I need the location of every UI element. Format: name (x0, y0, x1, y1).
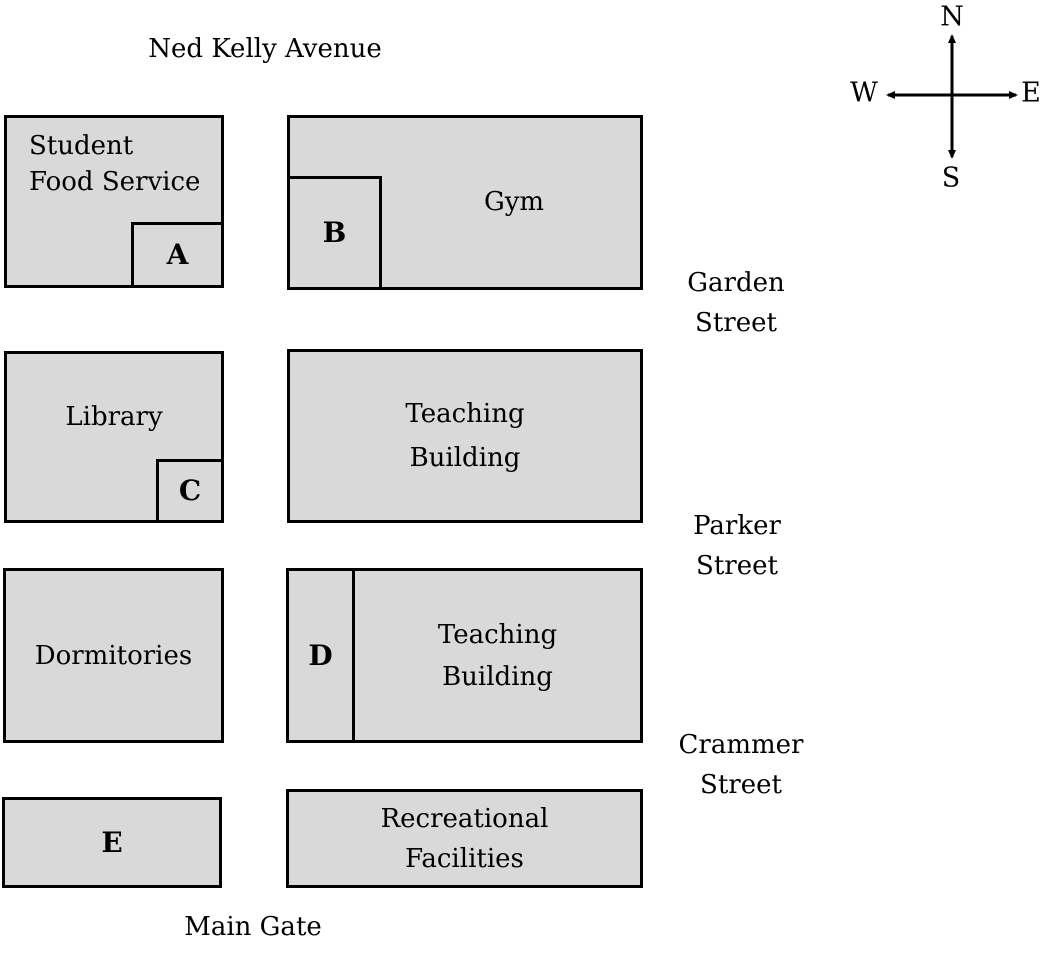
label-line: Teaching (405, 392, 524, 436)
label-line: Food Service (29, 164, 221, 200)
annex-box-d: D (289, 571, 355, 740)
label-line: Student (29, 128, 221, 164)
label-line: Building (405, 436, 524, 480)
annex-letter-b: B (323, 219, 347, 247)
label-line: Facilities (381, 839, 549, 879)
street-name-line: Crammer (679, 725, 804, 765)
building-label: Student Food Service (29, 128, 221, 200)
compass-north-label: N (940, 4, 964, 31)
annex-letter-e: E (101, 829, 122, 857)
label-line: Building (438, 656, 557, 698)
avenue-label: Ned Kelly Avenue (148, 34, 381, 64)
building-label: Library (65, 402, 162, 432)
street-name-line: Street (687, 303, 784, 343)
building-label-area: Teaching Building (355, 571, 640, 740)
main-gate-label: Main Gate (184, 912, 322, 942)
building-label: Recreational Facilities (381, 799, 549, 879)
compass-south-label: S (942, 165, 961, 192)
annex-box-b: B (287, 176, 382, 290)
street-name-line: Garden (687, 263, 784, 303)
label-line: Recreational (381, 799, 549, 839)
annex-letter-d: D (308, 642, 332, 670)
building-label: Teaching Building (438, 614, 557, 698)
annex-box-e: E (2, 797, 222, 888)
street-label-parker: Parker Street (693, 506, 781, 586)
annex-box-a: A (131, 222, 224, 288)
building-teaching-north: Teaching Building (287, 349, 643, 523)
building-recreational-facilities: Recreational Facilities (286, 789, 643, 888)
street-name-line: Street (679, 765, 804, 805)
annex-letter-c: C (179, 477, 201, 505)
street-name-line: Street (693, 546, 781, 586)
street-name-line: Parker (693, 506, 781, 546)
annex-box-c: C (156, 459, 224, 523)
annex-letter-a: A (167, 241, 189, 269)
building-dormitories: Dormitories (3, 568, 224, 743)
campus-map: Ned Kelly Avenue N S W E Student Food Se… (0, 0, 1046, 956)
compass-east-label: E (1021, 80, 1041, 107)
building-label: Teaching Building (405, 392, 524, 480)
building-label: Gym (484, 187, 544, 217)
building-label: Dormitories (35, 641, 192, 671)
building-teaching-south: D Teaching Building (286, 568, 643, 743)
street-label-garden: Garden Street (687, 263, 784, 343)
street-label-crammer: Crammer Street (679, 725, 804, 805)
compass-west-label: W (850, 80, 878, 107)
label-line: Teaching (438, 614, 557, 656)
